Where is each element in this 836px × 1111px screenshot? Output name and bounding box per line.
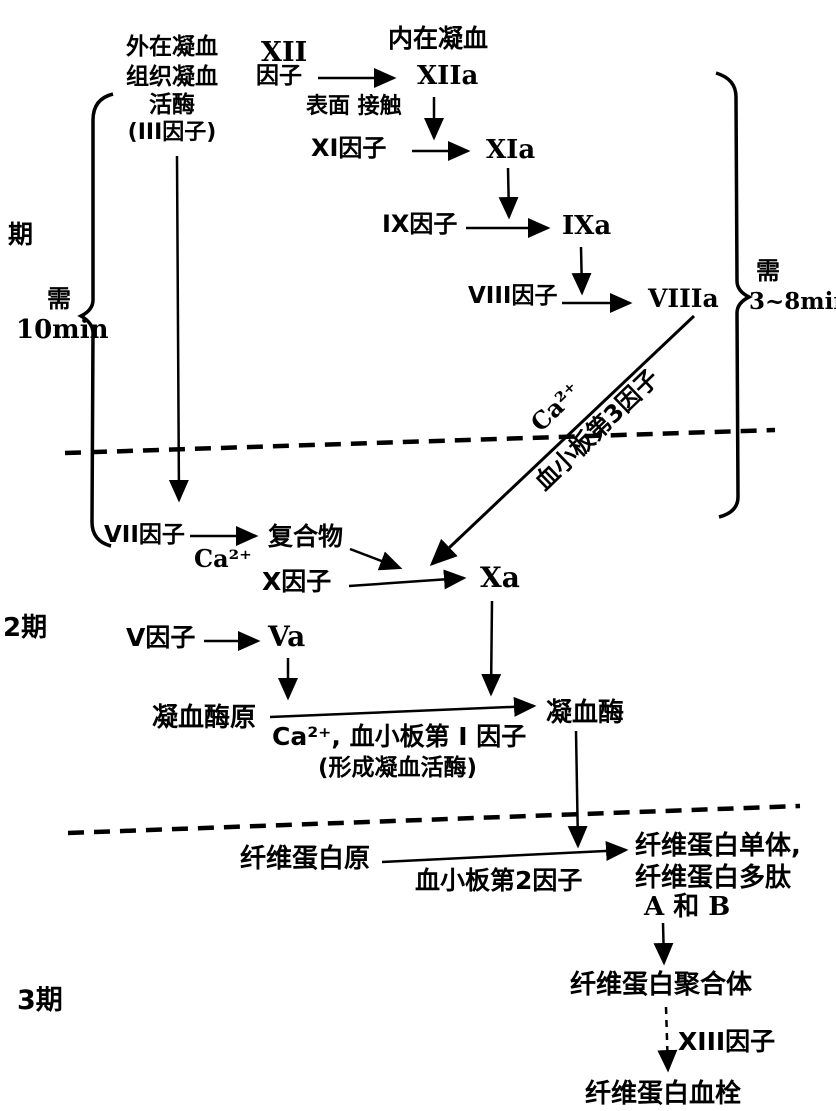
node-thrombin: 凝血酶 bbox=[546, 699, 624, 728]
node-ixa: IXa bbox=[562, 212, 611, 241]
node-fibrin-polymer: 纤维蛋白聚合体 bbox=[570, 971, 752, 1000]
arrow-prothrombin-to-thrombin bbox=[270, 706, 534, 717]
node-ix-factor: IX因子 bbox=[382, 211, 457, 237]
time-right-label: 3~8min bbox=[749, 289, 836, 314]
arrow-monomer-down bbox=[663, 923, 664, 963]
arrow-polymer-to-clot-dashed bbox=[666, 1007, 668, 1070]
node-xia: XIa bbox=[486, 136, 535, 165]
forming-thromboplastin-note: (形成凝血活酶) bbox=[318, 756, 477, 781]
node-xi-factor: XI因子 bbox=[311, 135, 386, 161]
arrow-ixa-down bbox=[581, 247, 582, 293]
node-va: Va bbox=[268, 622, 305, 653]
ca-vii-label: Ca²⁺ bbox=[194, 546, 252, 572]
node-vii-factor: VII因子 bbox=[104, 523, 185, 548]
node-viii-factor: VIII因子 bbox=[468, 284, 557, 309]
arrow-x-to-xa bbox=[349, 578, 464, 586]
extrinsic-header-line3: 活酶 bbox=[114, 92, 230, 119]
ca-platelet1-label: Ca²⁺, 血小板第 I 因子 bbox=[272, 723, 526, 751]
node-xiii-factor: XIII因子 bbox=[678, 1028, 775, 1056]
need-right-label: 需 bbox=[756, 258, 780, 284]
arrow-complex-to-x-junction bbox=[350, 549, 400, 568]
extrinsic-header-line1: 外在凝血 bbox=[114, 32, 230, 62]
coagulation-cascade-diagram: 期 2期 3期 需 10min 需 3~8min 外在凝血 组织凝血 活酶 (I… bbox=[0, 0, 836, 1111]
connector-layer bbox=[0, 0, 836, 1111]
stage1-label: 期 bbox=[8, 221, 33, 249]
need-left-label: 需 bbox=[47, 286, 71, 312]
intrinsic-header: 内在凝血 bbox=[388, 25, 488, 53]
phase2-3-divider bbox=[68, 806, 800, 833]
arrow-thrombin-down bbox=[576, 731, 578, 846]
platelet-factor2-label: 血小板第2因子 bbox=[415, 867, 582, 895]
node-viiia: VIIIa bbox=[648, 285, 719, 313]
stage3-label: 3期 bbox=[17, 986, 63, 1016]
node-xiia: XIIa bbox=[417, 62, 478, 91]
arrow-xa-down bbox=[491, 601, 492, 694]
node-fibrin-monomer: 纤维蛋白单体, bbox=[635, 832, 801, 861]
node-prothrombin: 凝血酶原 bbox=[152, 704, 256, 733]
node-fibrin-polypeptide: 纤维蛋白多肽 bbox=[635, 864, 791, 893]
stage2-label: 2期 bbox=[3, 614, 47, 643]
arrow-xia-down bbox=[508, 168, 509, 217]
extrinsic-header: 外在凝血 组织凝血 活酶 (III因子) bbox=[114, 32, 230, 146]
arrow-fibrinogen-to-monomer bbox=[382, 850, 626, 862]
time-left-label: 10min bbox=[16, 316, 108, 345]
node-a-and-b: A 和 B bbox=[644, 893, 730, 922]
node-x-factor: X因子 bbox=[262, 568, 331, 596]
node-fibrin-clot: 纤维蛋白血栓 bbox=[585, 1080, 741, 1109]
arrow-viiia-to-x-junction bbox=[432, 316, 694, 564]
surface-contact-label: 表面 接触 bbox=[306, 95, 402, 119]
node-complex: 复合物 bbox=[268, 523, 343, 551]
node-xii-factor-word: 因子 bbox=[256, 64, 302, 89]
right-brace bbox=[716, 73, 749, 517]
phase1-2-divider bbox=[65, 430, 775, 453]
extrinsic-header-line4: (III因子) bbox=[114, 119, 230, 146]
extrinsic-header-line2: 组织凝血 bbox=[114, 62, 230, 92]
node-fibrinogen: 纤维蛋白原 bbox=[240, 845, 370, 874]
node-xa: Xa bbox=[480, 563, 520, 594]
node-v-factor: V因子 bbox=[126, 624, 195, 652]
